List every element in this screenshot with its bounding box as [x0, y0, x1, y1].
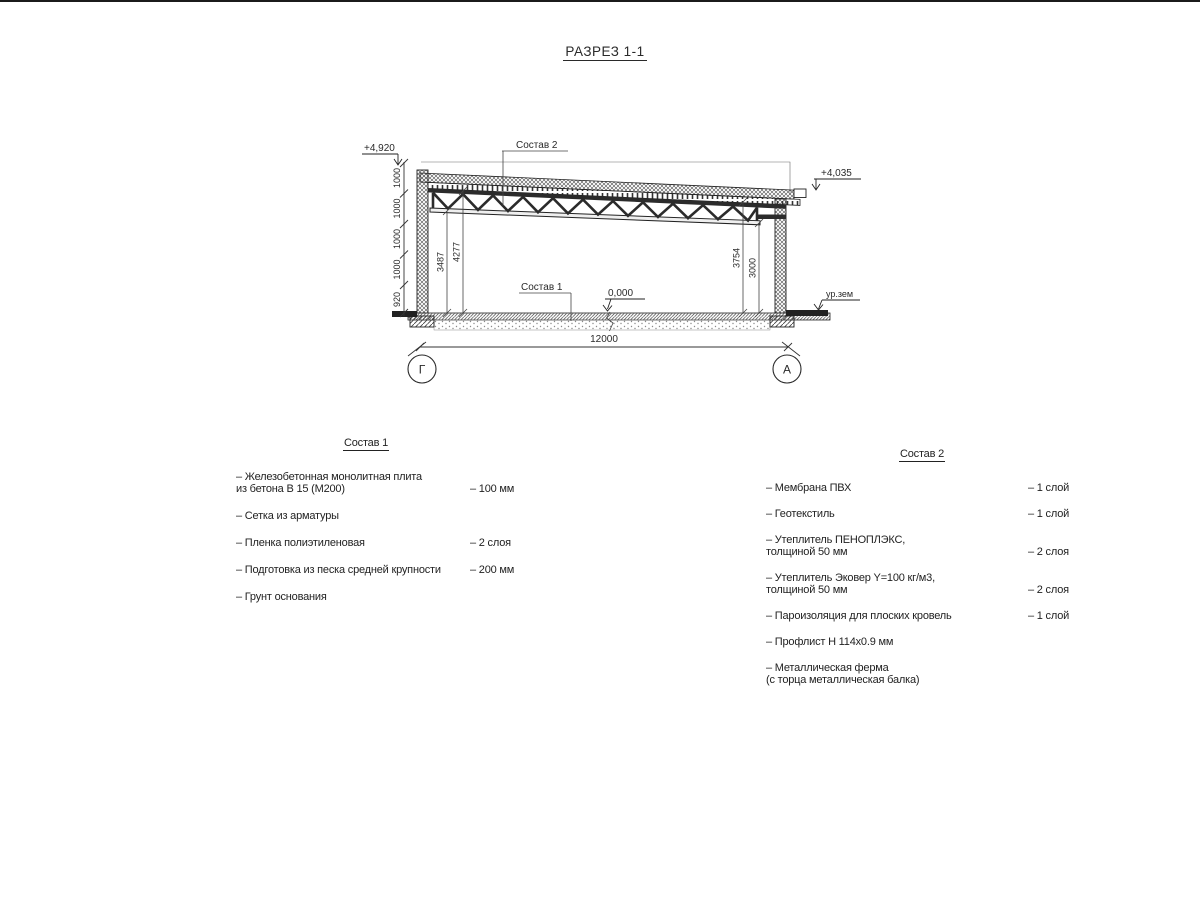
ground-level-label: ур.зем: [826, 289, 853, 299]
dim-left-1: 1000: [392, 168, 402, 188]
axis-circle-right: А: [773, 355, 801, 383]
item-value: – 2 слоя: [470, 537, 511, 549]
elevation-roof-edge-label: +4,035: [821, 168, 852, 179]
dim-left-4: 1000: [392, 259, 402, 279]
dim-interior-3754: 3754: [732, 248, 742, 268]
sostav1-header-text: Состав 1: [343, 437, 389, 451]
sostav2-header: Состав 2: [766, 448, 1078, 460]
dim-interior-4277: 4277: [452, 242, 462, 262]
sostav1-list: Состав 1 – Железобетонная монолитная пли…: [236, 437, 526, 618]
interior-dims: [443, 187, 763, 317]
elevation-floor-label: 0,000: [608, 288, 633, 299]
item-name-cont: толщиной 50 мм: [766, 546, 1028, 558]
list-item: – Утеплитель ПЕНОПЛЭКС, толщиной 50 мм –…: [766, 534, 1078, 558]
list-item: – Геотекстиль – 1 слой: [766, 508, 1078, 520]
item-name-cont: толщиной 50 мм: [766, 584, 1028, 596]
item-value: – 2 слоя: [1028, 584, 1069, 596]
elevation-mark-floor: 0,000: [603, 288, 645, 311]
item-value: – 1 слой: [1028, 508, 1069, 520]
list-item: – Пленка полиэтиленовая – 2 слоя: [236, 537, 526, 549]
sostav1-header: Состав 1: [236, 437, 496, 449]
span-dim-label: 12000: [590, 334, 618, 345]
item-name: – Утеплитель Эковер Y=100 кг/м3,: [766, 572, 1028, 584]
drawing-sheet: РАЗРЕЗ 1-1: [0, 0, 1200, 900]
dim-left-2: 1000: [392, 198, 402, 218]
elevation-mark-ground: ур.зем: [814, 289, 860, 310]
list-item: – Пароизоляция для плоских кровель – 1 с…: [766, 610, 1078, 622]
dim-left-5: 920: [392, 292, 402, 307]
item-name: – Грунт основания: [236, 591, 470, 603]
item-name: – Сетка из арматуры: [236, 510, 470, 522]
item-name-cont: (с торца металлическая балка): [766, 674, 1028, 686]
section-drawing: 1000 1000 1000 1000 920 3487 4277 3754 3…: [0, 0, 1200, 430]
dim-left-3: 1000: [392, 229, 402, 249]
item-value: – 1 слой: [1028, 610, 1069, 622]
sostav2-header-text: Состав 2: [899, 448, 945, 462]
item-name: – Железобетонная монолитная плита: [236, 471, 470, 483]
right-footing: [770, 316, 794, 327]
dim-interior-3487: 3487: [436, 252, 446, 272]
item-name: – Геотекстиль: [766, 508, 1028, 520]
list-item: – Подготовка из песка средней крупности …: [236, 564, 526, 576]
item-value: – 200 мм: [470, 564, 514, 576]
roof-edge-cap: [794, 189, 806, 198]
item-name: – Металлическая ферма: [766, 662, 1028, 674]
item-name: – Подготовка из песка средней крупности: [236, 564, 470, 576]
list-item: – Грунт основания: [236, 591, 526, 603]
list-item: – Утеплитель Эковер Y=100 кг/м3, толщино…: [766, 572, 1078, 596]
right-ground-plate: [786, 310, 828, 316]
item-value: – 2 слоя: [1028, 546, 1069, 558]
item-name-cont: из бетона В 15 (М200): [236, 483, 470, 495]
axis-right-label: А: [783, 363, 791, 377]
axis-left-label: Г: [419, 363, 426, 377]
list-item: – Мембрана ПВХ – 1 слой: [766, 482, 1078, 494]
list-item: – Металлическая ферма (с торца металличе…: [766, 662, 1078, 686]
list-item: – Сетка из арматуры: [236, 510, 526, 522]
axis-circle-left: Г: [408, 355, 436, 383]
sand-bed: [434, 320, 770, 330]
list-item: – Профлист Н 114х0.9 мм: [766, 636, 1078, 648]
item-name: – Пароизоляция для плоских кровель: [766, 610, 1028, 622]
truss-bearing-right: [757, 215, 786, 220]
callout-floor-label: Состав 1: [521, 282, 563, 293]
left-wall: [417, 170, 428, 313]
dim-interior-3000: 3000: [748, 258, 758, 278]
elevation-mark-parapet: +4,920: [362, 143, 402, 165]
callout-roof-label: Состав 2: [516, 140, 558, 151]
item-name: – Пленка полиэтиленовая: [236, 537, 470, 549]
list-item: – Железобетонная монолитная плита из бет…: [236, 471, 526, 495]
item-value: – 1 слой: [1028, 482, 1069, 494]
left-footing: [410, 316, 434, 327]
floor-slab: [408, 313, 830, 320]
item-name: – Профлист Н 114х0.9 мм: [766, 636, 1028, 648]
item-value: – 100 мм: [470, 483, 514, 495]
sostav2-list: Состав 2 – Мембрана ПВХ – 1 слой – Геоте…: [766, 448, 1078, 700]
elevation-mark-roof-edge: +4,035: [812, 168, 861, 190]
item-name: – Мембрана ПВХ: [766, 482, 1028, 494]
item-name: – Утеплитель ПЕНОПЛЭКС,: [766, 534, 1028, 546]
elevation-parapet-label: +4,920: [364, 143, 395, 154]
